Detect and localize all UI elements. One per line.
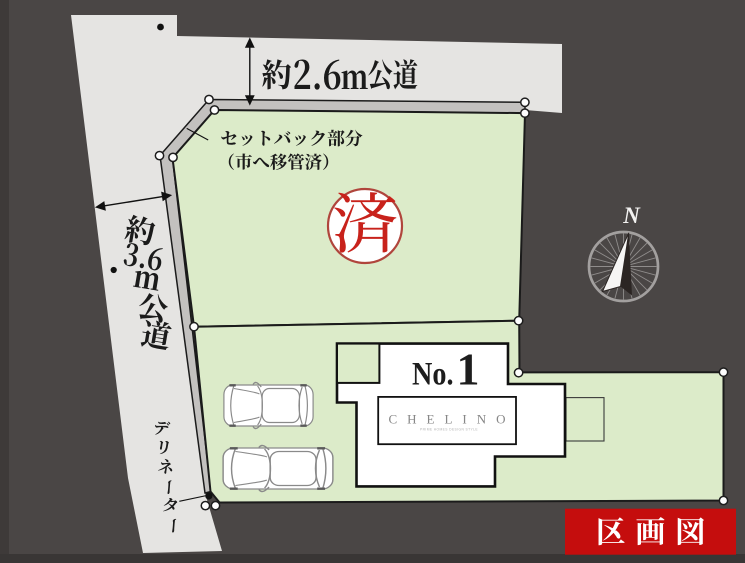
- svg-text:CHELINO: CHELINO: [388, 412, 515, 427]
- svg-text:N: N: [622, 203, 641, 228]
- svg-text:1: 1: [457, 344, 480, 395]
- svg-text:No.: No.: [412, 357, 454, 393]
- svg-text:PRIME HOMES DESIGN STYLE: PRIME HOMES DESIGN STYLE: [420, 428, 478, 432]
